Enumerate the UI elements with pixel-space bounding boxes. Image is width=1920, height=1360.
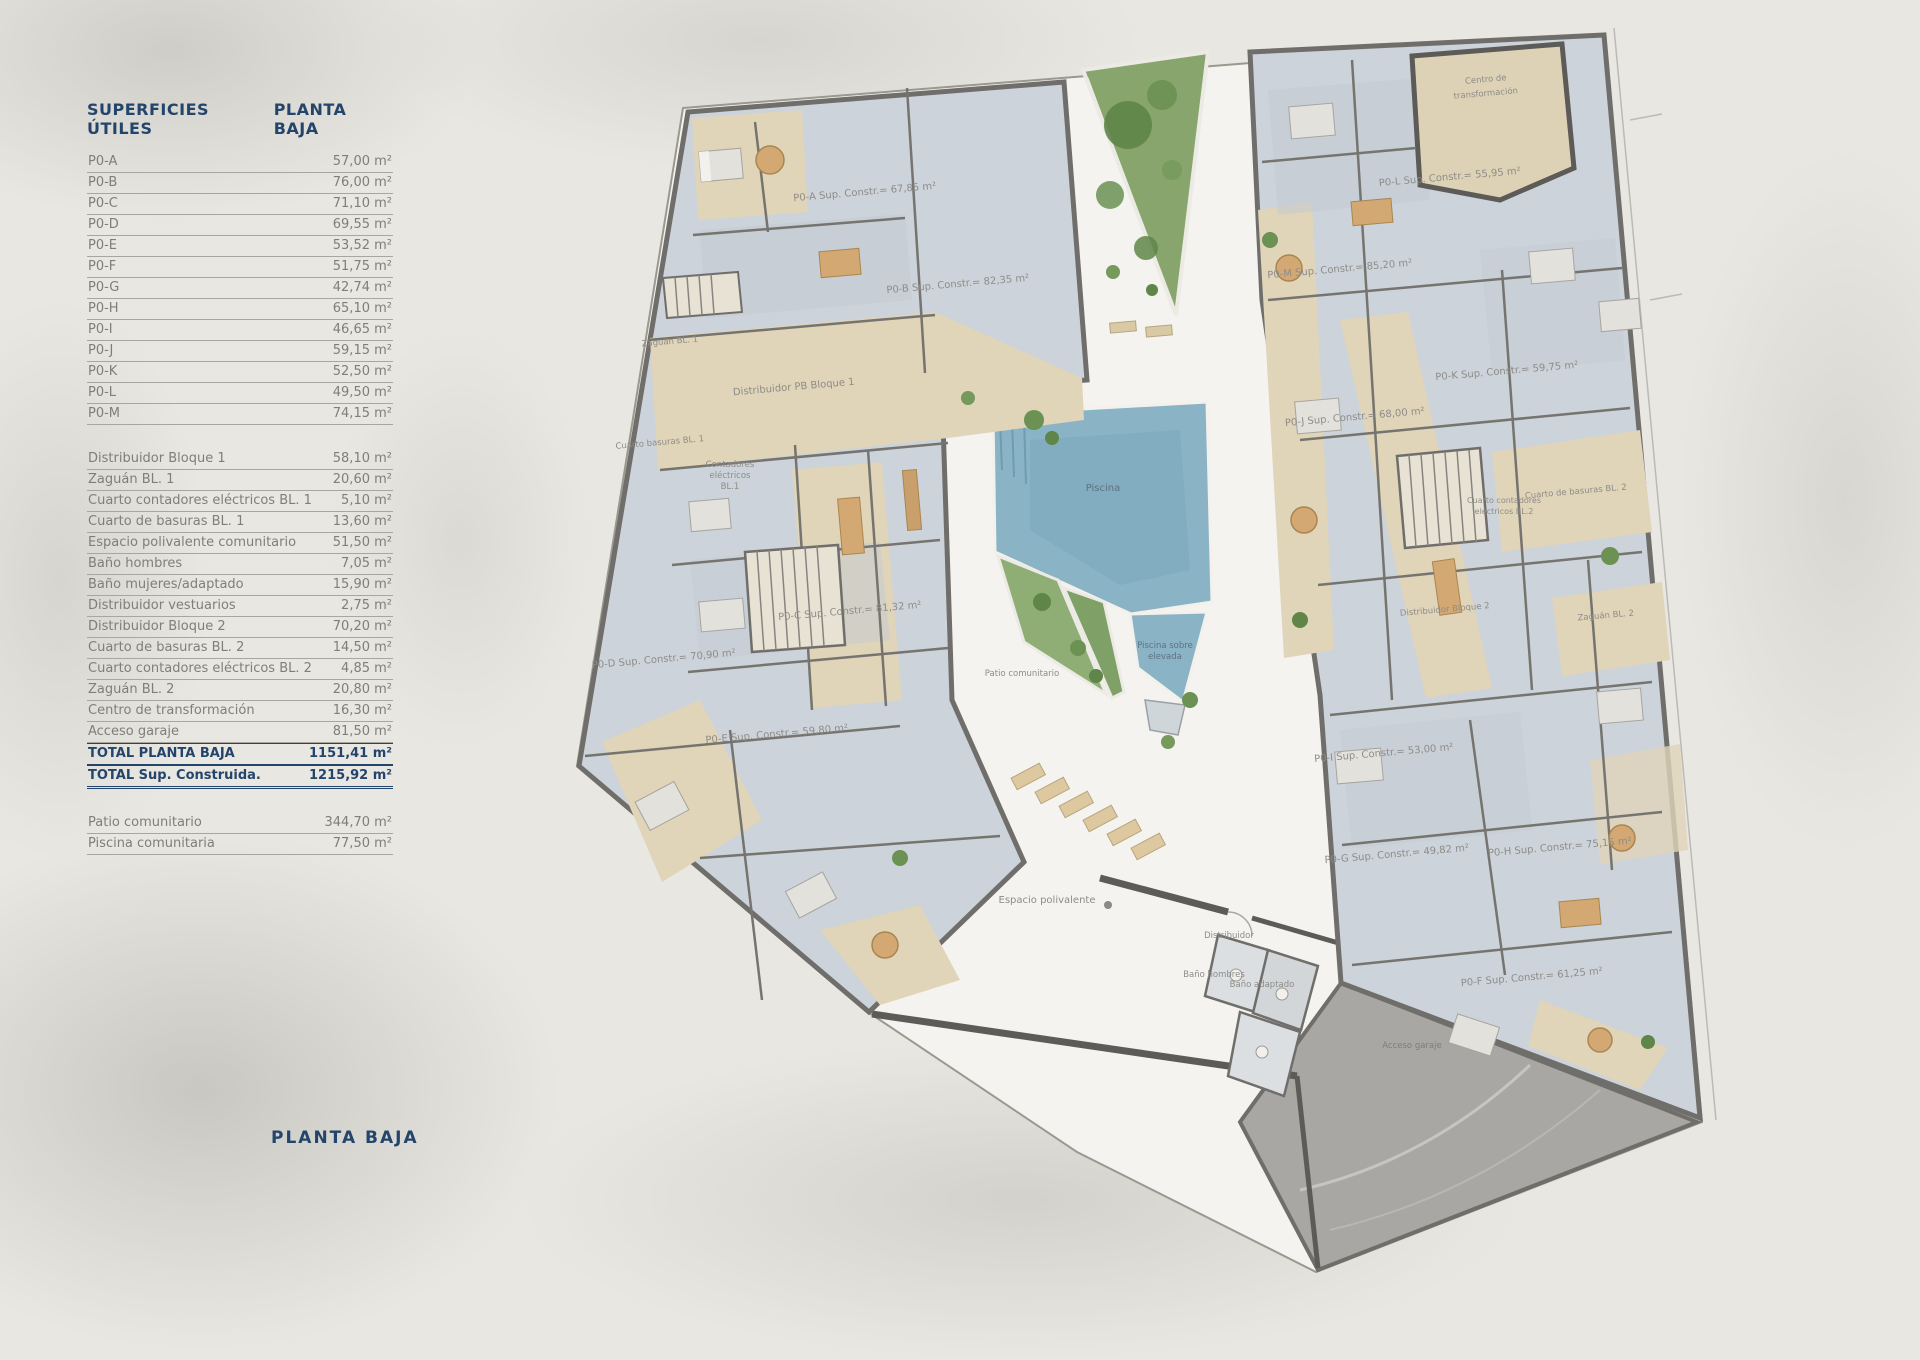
row-value: 76,00 m² [333,173,392,193]
row-label: P0-G [88,278,119,298]
room-label: Distribuidor [1204,931,1254,941]
row-value: 51,50 m² [333,533,392,553]
row-value: 20,60 m² [333,470,392,490]
row-label: P0-E [88,236,117,256]
outdoor-section: Patio comunitario344,70 m² Piscina comun… [87,813,393,855]
row-value: 5,10 m² [341,491,392,511]
row-value: 1215,92 m² [309,766,392,786]
table-row: P0-A57,00 m² [87,152,393,173]
row-value: 15,90 m² [333,575,392,595]
row-label: Espacio polivalente comunitario [88,533,296,553]
row-value: 42,74 m² [333,278,392,298]
row-value: 71,10 m² [333,194,392,214]
plan-title: PLANTA BAJA [271,1128,419,1148]
table-row: P0-B76,00 m² [87,173,393,194]
row-label: Zaguán BL. 1 [88,470,174,490]
table-row: P0-H65,10 m² [87,299,393,320]
table-row: Cuarto contadores eléctricos BL. 15,10 m… [87,491,393,512]
row-value: 69,55 m² [333,215,392,235]
row-label: Centro de transformación [88,701,255,721]
common-areas-section: Distribuidor Bloque 158,10 m² Zaguán BL.… [87,449,393,789]
row-label: P0-K [88,362,117,382]
table-row: Cuarto de basuras BL. 113,60 m² [87,512,393,533]
row-value: 70,20 m² [333,617,392,637]
table-row: Zaguán BL. 220,80 m² [87,680,393,701]
total-row: TOTAL Sup. Construida.1215,92 m² [87,766,393,789]
row-value: 77,50 m² [333,834,392,854]
row-label: P0-H [88,299,119,319]
row-value: 59,15 m² [333,341,392,361]
table-title: SUPERFICIES ÚTILES [87,100,274,138]
row-label: Cuarto de basuras BL. 1 [88,512,244,532]
room-label: Contadores [706,460,755,470]
row-value: 4,85 m² [341,659,392,679]
pool-label: Piscina sobre [1137,641,1193,651]
row-label: P0-D [88,215,119,235]
row-label: Baño hombres [88,554,182,574]
row-value: 46,65 m² [333,320,392,340]
table-row: Distribuidor vestuarios2,75 m² [87,596,393,617]
row-label: Distribuidor Bloque 2 [88,617,226,637]
table-row: Baño hombres7,05 m² [87,554,393,575]
row-label: P0-C [88,194,118,214]
row-value: 344,70 m² [325,813,393,833]
row-label: TOTAL Sup. Construida. [88,766,261,786]
total-row: TOTAL PLANTA BAJA1151,41 m² [87,743,393,766]
page: { "colors":{ "navy":"#24456b","row_gray"… [0,0,1920,1280]
row-label: TOTAL PLANTA BAJA [88,744,235,764]
row-label: P0-J [88,341,113,361]
patio-label: Patio comunitario [985,669,1059,679]
row-value: 74,15 m² [333,404,392,424]
table-row: P0-F51,75 m² [87,257,393,278]
table-row: Centro de transformación16,30 m² [87,701,393,722]
row-value: 20,80 m² [333,680,392,700]
room-label: Espacio polivalente [999,895,1096,906]
row-value: 81,50 m² [333,722,392,742]
table-row: Distribuidor Bloque 158,10 m² [87,449,393,470]
table-row: Distribuidor Bloque 270,20 m² [87,617,393,638]
parcel-line [1650,294,1682,300]
table-row: P0-J59,15 m² [87,341,393,362]
row-label: P0-I [88,320,113,340]
room-label: eléctricos BL.2 [1475,506,1534,516]
row-label: Cuarto de basuras BL. 2 [88,638,244,658]
row-label: Cuarto contadores eléctricos BL. 1 [88,491,312,511]
table-row: Zaguán BL. 120,60 m² [87,470,393,491]
row-value: 52,50 m² [333,362,392,382]
table-row: P0-K52,50 m² [87,362,393,383]
row-value: 14,50 m² [333,638,392,658]
row-label: Patio comunitario [88,813,202,833]
row-value: 16,30 m² [333,701,392,721]
row-value: 13,60 m² [333,512,392,532]
areas-table: SUPERFICIES ÚTILES PLANTA BAJA P0-A57,00… [87,100,393,879]
table-row: P0-G42,74 m² [87,278,393,299]
table-header: SUPERFICIES ÚTILES PLANTA BAJA [87,100,393,138]
row-label: P0-B [88,173,117,193]
row-value: 57,00 m² [333,152,392,172]
table-row: P0-M74,15 m² [87,404,393,425]
row-label: Distribuidor vestuarios [88,596,236,616]
table-row: Cuarto de basuras BL. 214,50 m² [87,638,393,659]
row-label: P0-L [88,383,116,403]
row-label: P0-F [88,257,116,277]
room-label: eléctricos [710,470,752,481]
table-subtitle: PLANTA BAJA [274,100,393,138]
table-row: Baño mujeres/adaptado15,90 m² [87,575,393,596]
room-label: Baño hombres [1183,970,1245,980]
table-row: Acceso garaje81,50 m² [87,722,393,743]
row-value: 51,75 m² [333,257,392,277]
row-label: P0-A [88,152,117,172]
room-label: BL.1 [721,482,740,492]
table-row: Piscina comunitaria77,50 m² [87,834,393,855]
table-row: P0-E53,52 m² [87,236,393,257]
row-value: 7,05 m² [341,554,392,574]
row-label: Distribuidor Bloque 1 [88,449,226,469]
row-label: Zaguán BL. 2 [88,680,174,700]
row-value: 65,10 m² [333,299,392,319]
row-label: Baño mujeres/adaptado [88,575,244,595]
garage-label: Acceso garaje [1382,1041,1441,1051]
row-label: Acceso garaje [88,722,179,742]
row-label: P0-M [88,404,120,424]
row-value: 58,10 m² [333,449,392,469]
table-row: P0-D69,55 m² [87,215,393,236]
table-row: P0-I46,65 m² [87,320,393,341]
row-value: 49,50 m² [333,383,392,403]
room-label: Baño adaptado [1230,980,1295,990]
table-row: Cuarto contadores eléctricos BL. 24,85 m… [87,659,393,680]
row-value: 53,52 m² [333,236,392,256]
pool-label: elevada [1148,652,1182,662]
room-label: Cuarto contadores [1467,496,1541,505]
row-label: Piscina comunitaria [88,834,215,854]
table-row: P0-C71,10 m² [87,194,393,215]
row-value: 1151,41 m² [309,744,392,764]
pool-label: Piscina [1086,483,1121,494]
table-row: Patio comunitario344,70 m² [87,813,393,834]
row-label: Cuarto contadores eléctricos BL. 2 [88,659,312,679]
parcel-line [1630,114,1662,120]
table-row: P0-L49,50 m² [87,383,393,404]
units-section: P0-A57,00 m² P0-B76,00 m² P0-C71,10 m² P… [87,152,393,425]
table-row: Espacio polivalente comunitario51,50 m² [87,533,393,554]
row-value: 2,75 m² [341,596,392,616]
